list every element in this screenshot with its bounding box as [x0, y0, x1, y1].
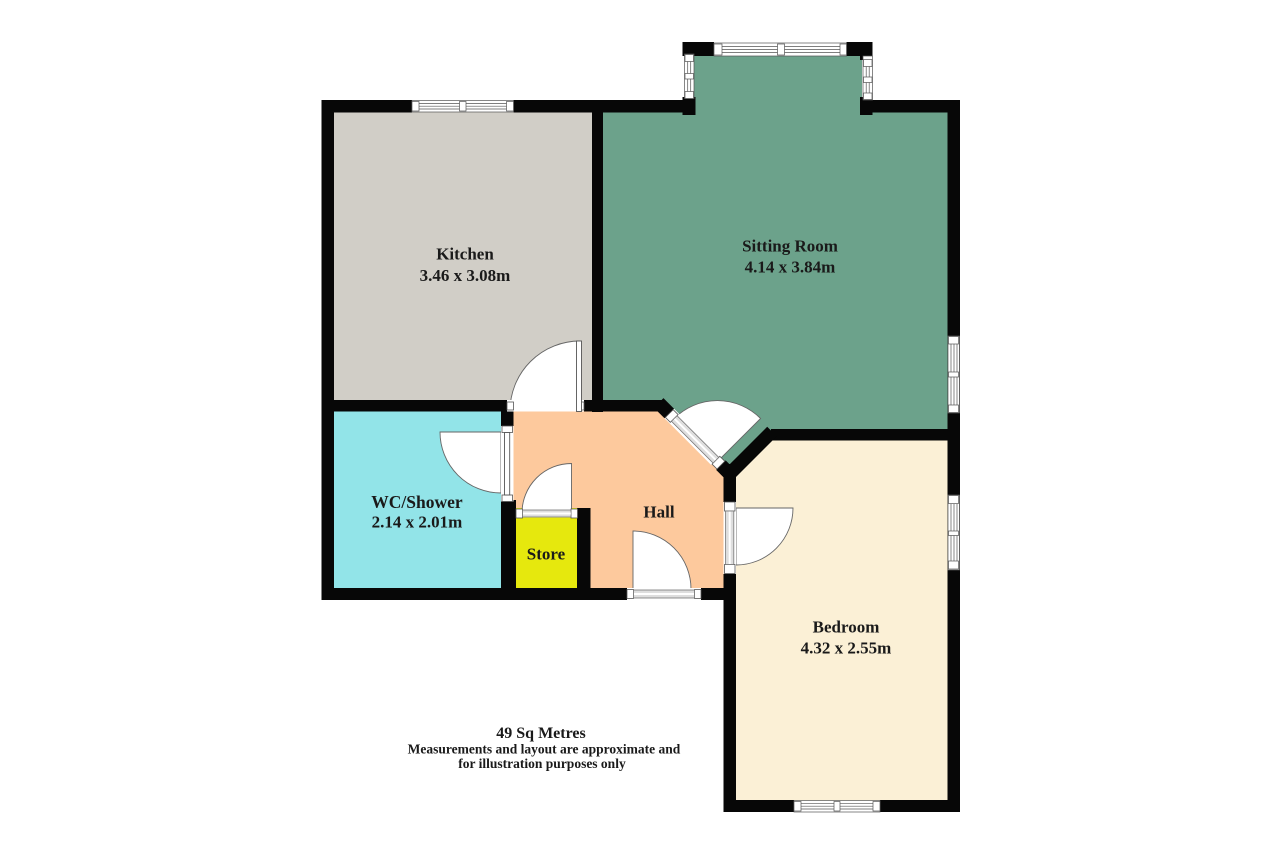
svg-text:Store: Store — [527, 545, 566, 564]
svg-text:Measurements and layout are ap: Measurements and layout are approximate … — [408, 742, 681, 757]
svg-text:49 Sq Metres: 49 Sq Metres — [496, 725, 585, 742]
svg-text:for illustration purposes only: for illustration purposes only — [458, 756, 626, 771]
svg-text:Sitting Room: Sitting Room — [742, 237, 838, 256]
svg-text:4.14 x 3.84m: 4.14 x 3.84m — [745, 258, 836, 277]
svg-text:3.46 x 3.08m: 3.46 x 3.08m — [420, 266, 511, 285]
svg-text:2.14 x 2.01m: 2.14 x 2.01m — [372, 513, 463, 532]
svg-text:Bedroom: Bedroom — [813, 618, 880, 637]
svg-text:Kitchen: Kitchen — [436, 245, 494, 264]
svg-text:Hall: Hall — [643, 503, 674, 522]
svg-text:WC/Shower: WC/Shower — [371, 492, 463, 512]
svg-text:4.32 x 2.55m: 4.32 x 2.55m — [801, 639, 892, 658]
